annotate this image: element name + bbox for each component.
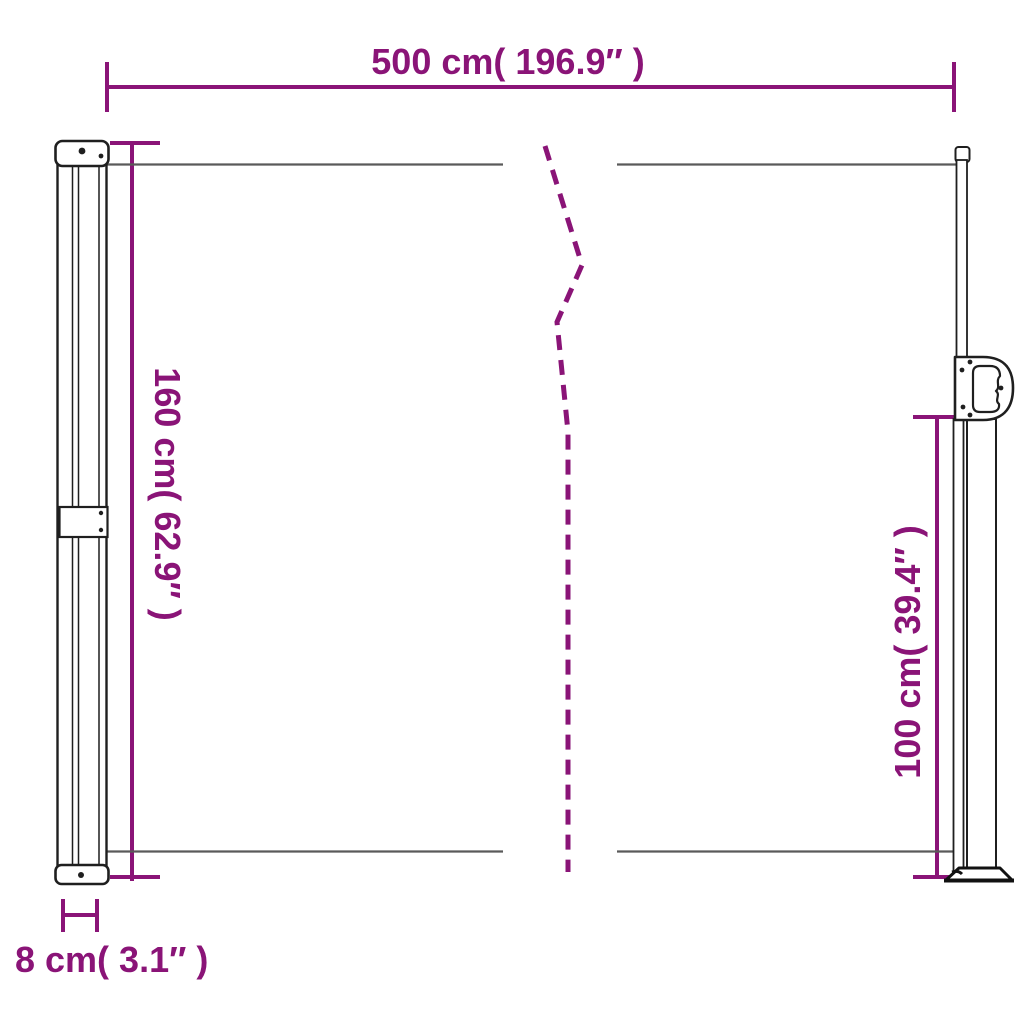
pole-handle-grip-cutout <box>973 366 1000 412</box>
cassette-top-cap-rivet-2 <box>99 154 104 159</box>
pole-lower-post <box>967 419 996 871</box>
pole-lower-front-bar <box>954 419 964 871</box>
handle-screw-4 <box>961 405 966 410</box>
handle-screw-2 <box>960 368 965 373</box>
fabric-break-dashed-line <box>545 146 582 872</box>
pole-upper <box>957 160 968 358</box>
awning-dimension-diagram: 500 cm( 196.9″ ) 160 cm( 62.9″ ) 100 cm(… <box>0 0 1024 1024</box>
bracket-screw-2 <box>99 528 103 532</box>
cassette-top-cap-rivet-1 <box>79 148 86 155</box>
handle-screw-3 <box>999 386 1004 391</box>
cassette-bottom-cap-rivet <box>78 872 84 878</box>
bracket-screw-1 <box>99 511 103 515</box>
handle-screw-5 <box>968 413 973 418</box>
awning-drawing <box>0 0 1024 1024</box>
handle-screw-1 <box>968 360 973 365</box>
pole-foot-plate <box>946 868 1012 880</box>
